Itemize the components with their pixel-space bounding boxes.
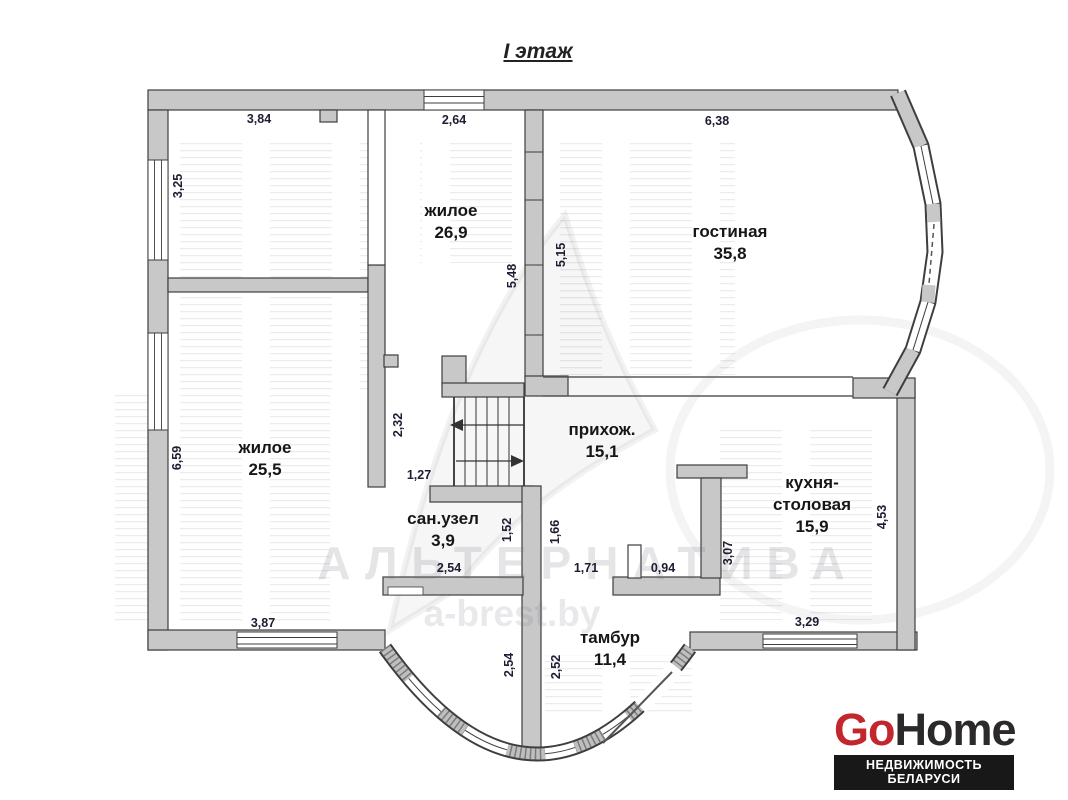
- floor-plan-drawing: [0, 0, 1068, 800]
- bay-window: [890, 93, 935, 392]
- dimension-label: 1,66: [548, 520, 562, 544]
- page-title: I этаж: [503, 40, 572, 64]
- room-area: 35,8: [693, 243, 768, 265]
- room-area: 15,9: [773, 516, 851, 538]
- logo-go: Go: [834, 704, 895, 755]
- room-label-living-269: жилое 26,9: [425, 200, 478, 244]
- dimension-label: 2,32: [391, 413, 405, 437]
- dimension-label: 1,71: [574, 561, 598, 575]
- room-name: жилое: [425, 200, 478, 222]
- logo-tagline: НЕДВИЖИМОСТЬ БЕЛАРУСИ: [834, 755, 1014, 790]
- room-label-bathroom: сан.узел 3,9: [407, 508, 479, 552]
- dimension-label: 2,64: [442, 113, 466, 127]
- room-area: 11,4: [580, 649, 640, 671]
- dimension-label: 1,27: [407, 468, 431, 482]
- room-label-vestibule: тамбур 11,4: [580, 627, 640, 671]
- room-label-living-255: жилое 25,5: [239, 437, 292, 481]
- room-area: 25,5: [239, 459, 292, 481]
- room-name: кухня-: [773, 472, 851, 494]
- room-name: столовая: [773, 494, 851, 516]
- room-name: сан.узел: [407, 508, 479, 530]
- room-label-kitchen: кухня- столовая 15,9: [773, 472, 851, 538]
- room-name: прихож.: [568, 419, 635, 441]
- room-name: жилое: [239, 437, 292, 459]
- dimension-label: 3,29: [795, 615, 819, 629]
- room-label-lounge-358: гостиная 35,8: [693, 221, 768, 265]
- room-label-hallway: прихож. 15,1: [568, 419, 635, 463]
- room-area: 15,1: [568, 441, 635, 463]
- dimension-label: 6,59: [170, 446, 184, 470]
- logo-wordmark: GoHome: [834, 707, 1014, 752]
- room-name: гостиная: [693, 221, 768, 243]
- floor-plan-page: I этаж АЛЬТЕРНАТИВА a-brest.by жилое 26,…: [0, 0, 1068, 800]
- dimension-label: 5,48: [505, 264, 519, 288]
- dimension-label: 3,25: [171, 174, 185, 198]
- dimension-label: 1,52: [500, 518, 514, 542]
- dimension-label: 2,54: [502, 653, 516, 677]
- dimension-label: 0,94: [651, 561, 675, 575]
- dimension-label: 3,87: [251, 616, 275, 630]
- dimension-label: 3,07: [721, 541, 735, 565]
- logo-home: Home: [895, 704, 1016, 755]
- room-area: 26,9: [425, 222, 478, 244]
- gohome-logo: GoHome НЕДВИЖИМОСТЬ БЕЛАРУСИ: [834, 707, 1014, 790]
- dimension-label: 4,53: [875, 505, 889, 529]
- dimension-label: 2,52: [549, 655, 563, 679]
- dimension-label: 5,15: [554, 243, 568, 267]
- room-name: тамбур: [580, 627, 640, 649]
- watermark-site: a-brest.by: [424, 593, 601, 635]
- dimension-label: 3,84: [247, 112, 271, 126]
- room-area: 3,9: [407, 530, 479, 552]
- dimension-label: 6,38: [705, 114, 729, 128]
- dimension-label: 2,54: [437, 561, 461, 575]
